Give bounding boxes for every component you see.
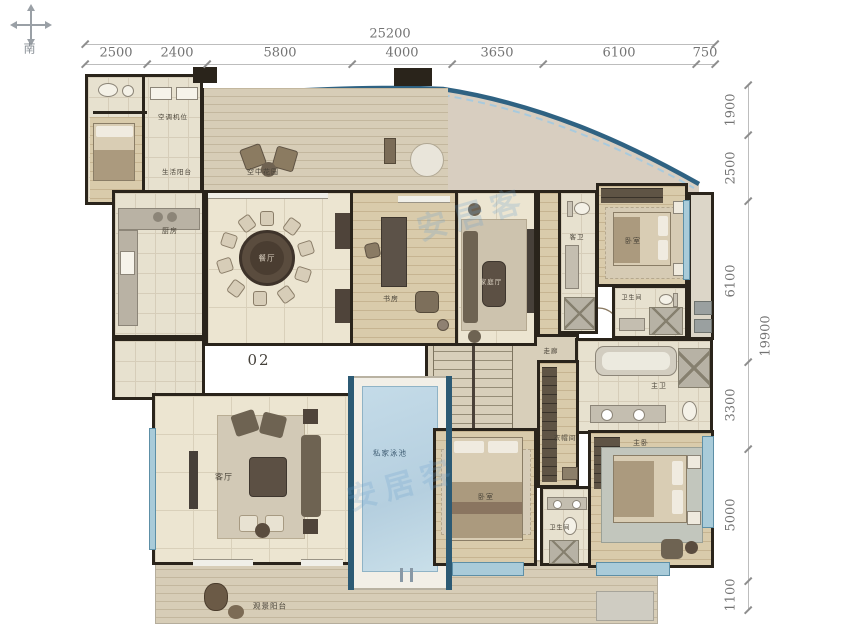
pool-ladder (400, 568, 403, 582)
pouf (468, 330, 481, 343)
glass-door (193, 559, 253, 566)
dim-right-seg-1: 2500 (724, 151, 739, 184)
living-label: 客厅 (215, 472, 233, 483)
bath-2-label: 卫生间 (621, 293, 642, 302)
side-table (303, 519, 318, 534)
corridor-label: 走廊 (544, 345, 559, 355)
washer-icon (150, 87, 172, 100)
bay-window (702, 436, 714, 528)
glass-door (301, 559, 343, 566)
toilet-icon (98, 83, 118, 97)
bed-icon (613, 455, 687, 523)
master-bath (575, 338, 713, 434)
sky-terrace-label: 空中花园 (247, 167, 279, 177)
walk-in-closet (537, 360, 579, 488)
bathtub-icon (595, 346, 677, 376)
wall-segment (142, 77, 145, 202)
dim-right-seg-4: 5000 (724, 498, 739, 531)
dim-right-seg-0: 1900 (724, 93, 739, 126)
living-sofa (301, 435, 321, 517)
sink-icon (122, 85, 134, 97)
bathtub-inner (602, 352, 670, 370)
wall-column (193, 67, 217, 83)
dim-right-seg-3: 3300 (724, 388, 739, 421)
bedroom-3-label: 卧室 (478, 492, 494, 502)
toilet-icon (659, 294, 673, 305)
sideboard (335, 289, 351, 323)
bed-pillow (672, 461, 683, 485)
bed-icon (613, 212, 671, 266)
equipment-pad (596, 591, 654, 621)
toilet-tank (567, 201, 573, 217)
toilet-icon (682, 401, 697, 421)
dim-right-seg-2: 6100 (724, 264, 739, 297)
dim-top-seg-2: 5800 (263, 46, 296, 61)
master-bath-label: 主卫 (651, 381, 667, 391)
bed-pillow (454, 441, 484, 453)
living-coffee-table (249, 457, 287, 497)
ac-unit (694, 301, 712, 315)
stove-burner (167, 212, 177, 222)
dim-top-seg-1: 2400 (160, 46, 193, 61)
ac-platform-label: 空调机位 (158, 111, 188, 121)
bath-vanity (547, 497, 587, 510)
dim-right-seg-line (748, 85, 749, 610)
family-room-label: 家庭厅 (480, 276, 503, 286)
toilet-tank (673, 293, 678, 307)
side-table (303, 409, 318, 424)
wardrobe (542, 367, 557, 482)
kitchen-counter (118, 230, 138, 326)
dim-top-total: 25200 (369, 27, 410, 42)
sideboard (335, 213, 351, 249)
bed-pillow (672, 490, 683, 514)
dining-label: 餐厅 (259, 253, 276, 264)
study-desk (381, 217, 407, 287)
dim-top-seg-3: 4000 (385, 46, 418, 61)
bed-pillow (96, 126, 133, 137)
dim-top-seg-0: 2500 (99, 46, 132, 61)
glass-door (208, 193, 328, 199)
floorplan-canvas: 南 25200 2500 2400 5800 4000 3650 6100 75… (0, 0, 850, 631)
dim-top-seg-line (85, 64, 715, 65)
bedroom-2 (596, 183, 688, 287)
basin (601, 409, 613, 421)
bed-pillow (488, 441, 518, 453)
view-balcony-label: 观景阳台 (253, 601, 287, 612)
tv-cabinet (527, 229, 534, 313)
dim-right-seg-5: 1100 (724, 578, 739, 611)
service-balcony-label: 生活阳台 (162, 166, 192, 176)
landscape-rock (204, 583, 228, 611)
shower-icon (564, 297, 595, 330)
pool-label: 私家泳池 (373, 448, 407, 459)
compass-south-label: 南 (23, 40, 36, 57)
shower-icon (649, 307, 683, 335)
kitchen-label: 厨房 (162, 226, 178, 236)
tv-cabinet (189, 451, 198, 509)
window (452, 562, 524, 576)
master-bedroom-label: 主卧 (633, 438, 649, 448)
utility-block (85, 74, 203, 205)
living-room (152, 393, 352, 565)
dim-top-seg-4: 3650 (480, 46, 513, 61)
dresser (562, 467, 578, 480)
nightstand (687, 455, 701, 469)
guest-bath (558, 190, 598, 334)
floor-lamp (437, 319, 449, 331)
basin (553, 500, 562, 509)
equipment-balcony (688, 192, 714, 340)
unit-number: 02 (247, 351, 270, 369)
parasol-table (410, 143, 444, 177)
double-vanity (590, 405, 666, 423)
pool-ladder (410, 568, 413, 582)
study-label: 书房 (383, 294, 399, 304)
window (596, 562, 670, 576)
bed-icon (449, 437, 523, 541)
stove-burner (153, 212, 163, 222)
bath-vanity (565, 245, 579, 289)
round-table (255, 523, 270, 538)
armchair (661, 539, 683, 559)
guest-bath-label: 客卫 (570, 231, 585, 241)
washer-icon (176, 87, 198, 100)
bed-blanket (94, 150, 134, 180)
wall-column (394, 68, 432, 86)
nightstand (687, 511, 701, 525)
dining-chair (260, 211, 274, 226)
planter (228, 605, 244, 619)
family-sofa (463, 231, 478, 323)
stair-rail (472, 341, 475, 431)
shower-icon (549, 540, 579, 564)
dim-right-total: 19900 (759, 315, 774, 356)
dim-top-seg-5: 6100 (602, 46, 635, 61)
toilet-icon (574, 202, 590, 215)
entry-hall (112, 338, 205, 400)
window (149, 428, 156, 550)
wardrobe (601, 188, 663, 203)
dim-top-seg-6: 750 (693, 46, 718, 61)
terrace-bench (384, 138, 396, 164)
wall-segment (93, 111, 147, 114)
bed-icon (93, 123, 135, 181)
kitchen-room (112, 190, 205, 338)
bath-vanity (619, 318, 645, 331)
round-table (685, 541, 698, 554)
shower-icon (678, 348, 710, 388)
desk-chair (364, 242, 382, 260)
closet-label: 衣帽间 (554, 432, 577, 442)
dining-chair (253, 291, 267, 306)
basin (633, 409, 645, 421)
master-bedroom (588, 430, 714, 568)
bed-runner (450, 502, 522, 514)
bed-blanket (614, 461, 654, 517)
bed-pillow (658, 240, 668, 260)
ac-unit (694, 319, 712, 333)
kitchen-sink (120, 251, 135, 275)
bath-3-label: 卫生间 (549, 523, 570, 532)
sky-terrace (200, 88, 448, 190)
basin (572, 500, 581, 509)
bedroom-2-label: 卧室 (625, 236, 641, 246)
window (683, 200, 690, 280)
bed-pillow (658, 216, 668, 236)
armchair (415, 291, 439, 313)
